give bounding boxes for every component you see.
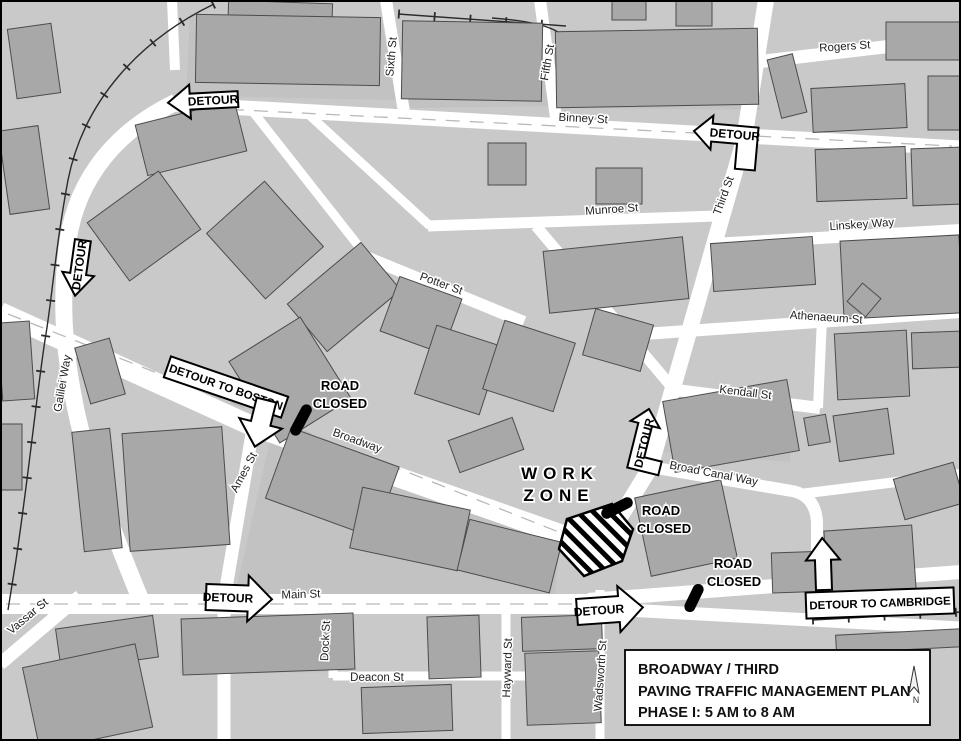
traffic-management-map: Rogers St Binney St Sixth St Fifth St Th… [0, 0, 961, 741]
road-athenaeum-kendall-connector [818, 318, 822, 408]
building [7, 23, 60, 98]
title-box: BROADWAY / THIRD PAVING TRAFFIC MANAGEME… [625, 650, 930, 725]
road-closed-label-3-line1: ROAD [714, 556, 752, 571]
building [911, 147, 961, 206]
building [804, 414, 831, 445]
building [0, 321, 35, 401]
work-zone-label-line1: WORK [521, 464, 599, 483]
road-top-stub [172, 0, 175, 70]
building [833, 408, 894, 461]
title-line2: PAVING TRAFFIC MANAGEMENT PLAN [638, 684, 911, 700]
building [195, 14, 380, 85]
road-closed-label-2-line2: CLOSED [637, 521, 691, 536]
building [710, 237, 815, 292]
building [676, 0, 712, 26]
road-closed-label-1-line2: CLOSED [313, 396, 367, 411]
title-line3: PHASE I: 5 AM to 8 AM [638, 705, 795, 721]
street-label-hayward: Hayward St [501, 637, 515, 698]
building [911, 331, 961, 369]
building [928, 76, 961, 130]
work-zone-label-line2: ZONE [523, 486, 594, 505]
street-label-deacon: Deacon St [350, 672, 405, 684]
detour-arrow-binney-west-label: DETOUR [187, 92, 238, 109]
building [122, 427, 230, 552]
building [525, 651, 601, 726]
road-closed-label-2-line1: ROAD [642, 503, 680, 518]
road-closed-label-1-line1: ROAD [321, 378, 359, 393]
detour-to-cambridge-sign: DETOUR TO CAMBRIDGE [806, 587, 955, 618]
north-label: N [913, 695, 920, 705]
detour-arrow-main-west-label: DETOUR [203, 590, 254, 606]
building [596, 168, 642, 204]
building [555, 28, 758, 108]
map-canvas: Rogers St Binney St Sixth St Fifth St Th… [0, 0, 961, 741]
street-label-dock: Dock St [319, 620, 333, 662]
building [361, 684, 453, 733]
building [815, 146, 907, 201]
title-line1: BROADWAY / THIRD [638, 662, 779, 678]
building [886, 22, 961, 60]
building [612, 0, 646, 20]
building [0, 424, 22, 490]
building [834, 330, 909, 400]
street-label-main: Main St [281, 588, 321, 601]
building [401, 21, 542, 101]
road-closed-label-3-line2: CLOSED [707, 574, 761, 589]
building [811, 84, 907, 133]
building [488, 143, 526, 185]
building [427, 615, 481, 679]
